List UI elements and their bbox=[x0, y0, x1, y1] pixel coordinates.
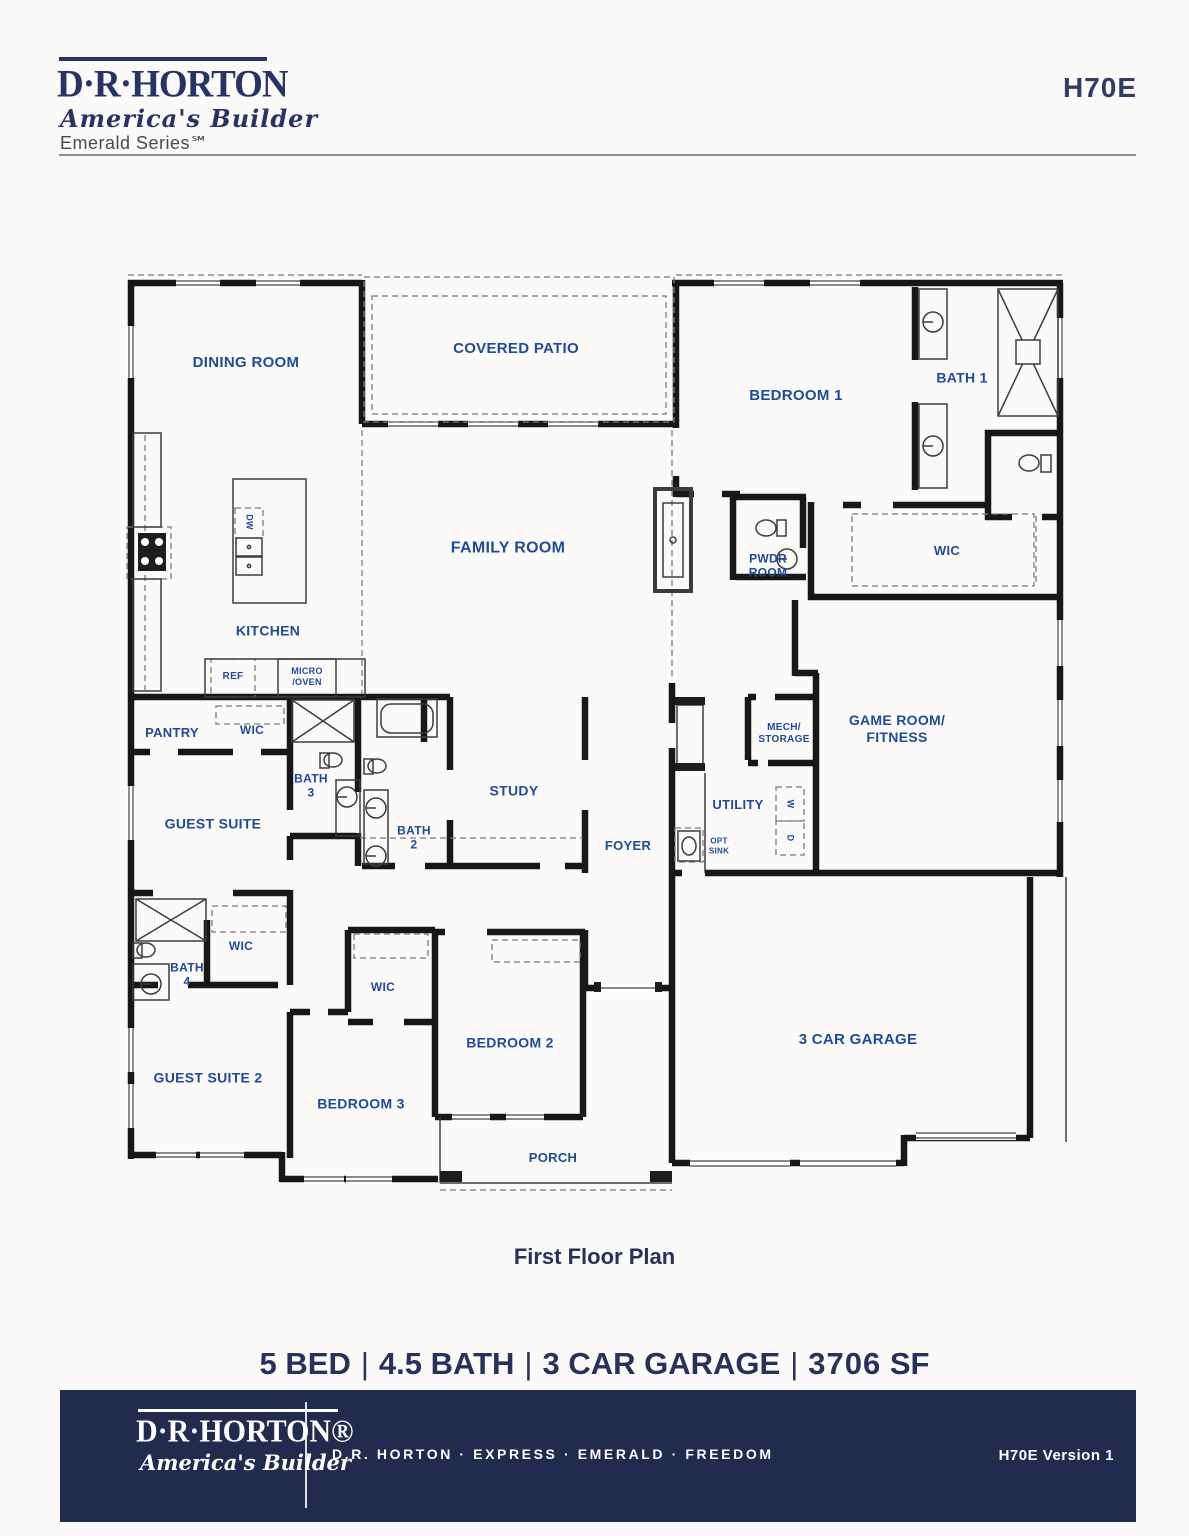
room-label-porch: PORCH bbox=[529, 1150, 577, 1166]
room-label-bath-4: BATH 4 bbox=[170, 961, 204, 990]
room-label-guest-suite-2: GUEST SUITE 2 bbox=[154, 1070, 263, 1087]
room-label-pwdr-room: PWDR ROOM bbox=[749, 552, 788, 581]
room-label-garage: 3 CAR GARAGE bbox=[799, 1031, 918, 1049]
specs-separator: | bbox=[514, 1346, 542, 1381]
room-label-wic-bedroom-1: WIC bbox=[934, 543, 960, 559]
room-label-refrigerator: REF bbox=[223, 671, 244, 683]
room-label-utility: UTILITY bbox=[712, 797, 763, 813]
footer-bar: D·R·HORTON® America's Builder D.R. HORTO… bbox=[60, 1390, 1136, 1522]
room-label-dryer: D bbox=[785, 835, 796, 842]
room-label-mech-storage: MECH/ STORAGE bbox=[758, 722, 809, 746]
room-label-bedroom-2: BEDROOM 2 bbox=[466, 1035, 554, 1052]
specs-separator: | bbox=[780, 1346, 808, 1381]
specs-garage: 3 CAR GARAGE bbox=[542, 1346, 780, 1381]
room-label-bath-3: BATH 3 bbox=[294, 772, 328, 801]
footer-divider bbox=[305, 1402, 307, 1508]
plan-caption: First Floor Plan bbox=[0, 1244, 1189, 1270]
room-labels: DINING ROOMCOVERED PATIOBEDROOM 1BATH 1F… bbox=[0, 0, 1189, 1536]
room-label-bath-1: BATH 1 bbox=[936, 370, 987, 387]
room-label-game-room-fitness: GAME ROOM/ FITNESS bbox=[849, 712, 945, 746]
footer-version: H70E Version 1 bbox=[999, 1447, 1114, 1464]
specs-sqft-unit: SF bbox=[890, 1346, 930, 1381]
room-label-bath-2: BATH 2 bbox=[397, 824, 431, 853]
room-label-covered-patio: COVERED PATIO bbox=[453, 340, 579, 358]
footer-brand-tagline: America's Builder bbox=[140, 1450, 351, 1475]
room-label-foyer: FOYER bbox=[605, 838, 651, 854]
room-label-bedroom-1: BEDROOM 1 bbox=[749, 387, 843, 405]
room-label-family-room: FAMILY ROOM bbox=[451, 538, 565, 557]
room-label-bedroom-3: BEDROOM 3 bbox=[317, 1096, 405, 1113]
room-label-kitchen: KITCHEN bbox=[236, 623, 300, 640]
specs-beds: 5 BED bbox=[260, 1346, 351, 1381]
specs-separator: | bbox=[351, 1346, 379, 1381]
specs-sqft-value: 3706 bbox=[808, 1346, 881, 1381]
room-label-study: STUDY bbox=[490, 783, 539, 800]
room-label-dining-room: DINING ROOM bbox=[193, 354, 300, 372]
room-label-wic-guest-suite-2: WIC bbox=[229, 939, 253, 953]
specs-baths: 4.5 BATH bbox=[379, 1346, 515, 1381]
footer-logo-line bbox=[138, 1409, 338, 1412]
flyer-page: D·R·HORTON America's Builder Emerald Ser… bbox=[0, 0, 1189, 1536]
specs-line: 5 BED|4.5 BATH|3 CAR GARAGE|3706 SF bbox=[0, 1346, 1189, 1382]
room-label-pantry: PANTRY bbox=[145, 725, 199, 741]
room-label-washer: W bbox=[785, 800, 796, 809]
footer-brand-logo: D·R·HORTON® bbox=[136, 1414, 354, 1450]
room-label-dishwasher: DW bbox=[244, 514, 255, 530]
room-label-guest-suite: GUEST SUITE bbox=[165, 816, 262, 833]
room-label-wic-guest-suite: WIC bbox=[240, 723, 264, 737]
room-label-micro-oven: MICRO /OVEN bbox=[291, 666, 323, 688]
room-label-opt-sink: OPT SINK bbox=[709, 836, 729, 855]
footer-brands-list: D.R. HORTON · EXPRESS · EMERALD · FREEDO… bbox=[332, 1446, 774, 1462]
room-label-wic-bedroom-3: WIC bbox=[371, 980, 395, 994]
